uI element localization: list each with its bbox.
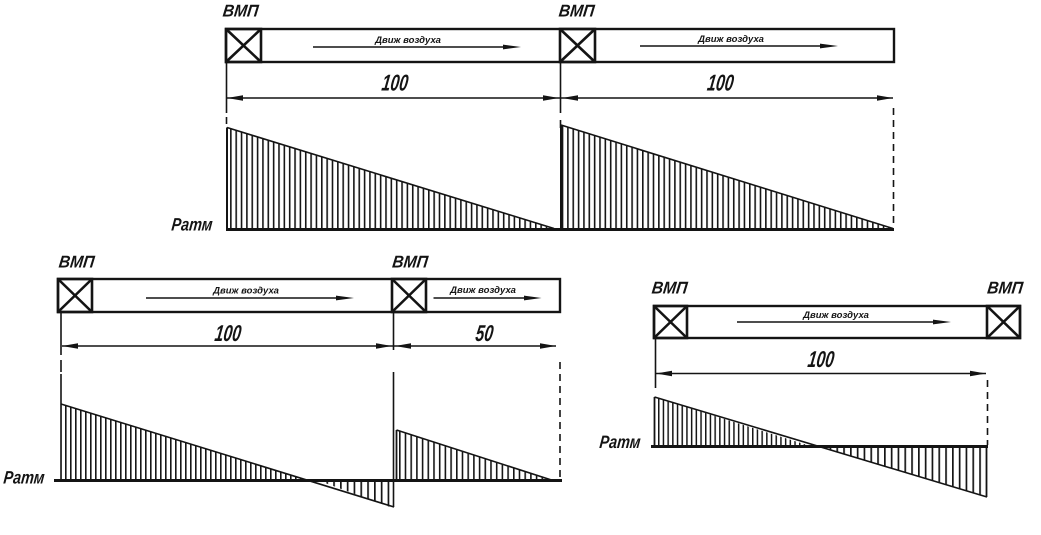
svg-text:100: 100 [706, 71, 736, 97]
svg-text:Движ воздуха: Движ воздуха [697, 34, 764, 45]
svg-text:ВМП: ВМП [986, 279, 1025, 298]
svg-text:ВМП: ВМП [558, 2, 597, 21]
svg-text:50: 50 [474, 321, 495, 347]
svg-text:ВМП: ВМП [391, 253, 430, 272]
svg-text:ВМП: ВМП [58, 253, 97, 272]
svg-text:Ратм: Ратм [599, 433, 642, 453]
svg-text:Ратм: Ратм [171, 215, 214, 235]
svg-text:ВМП: ВМП [651, 279, 690, 298]
svg-text:Движ воздуха: Движ воздуха [802, 310, 869, 321]
svg-text:100: 100 [380, 71, 410, 97]
svg-text:100: 100 [213, 321, 243, 347]
svg-text:Движ воздуха: Движ воздуха [374, 35, 441, 46]
svg-text:Движ воздуха: Движ воздуха [449, 285, 516, 296]
svg-text:ВМП: ВМП [222, 2, 261, 21]
svg-text:Движ воздуха: Движ воздуха [212, 286, 279, 297]
svg-text:Ратм: Ратм [3, 468, 46, 488]
svg-text:100: 100 [806, 347, 836, 373]
